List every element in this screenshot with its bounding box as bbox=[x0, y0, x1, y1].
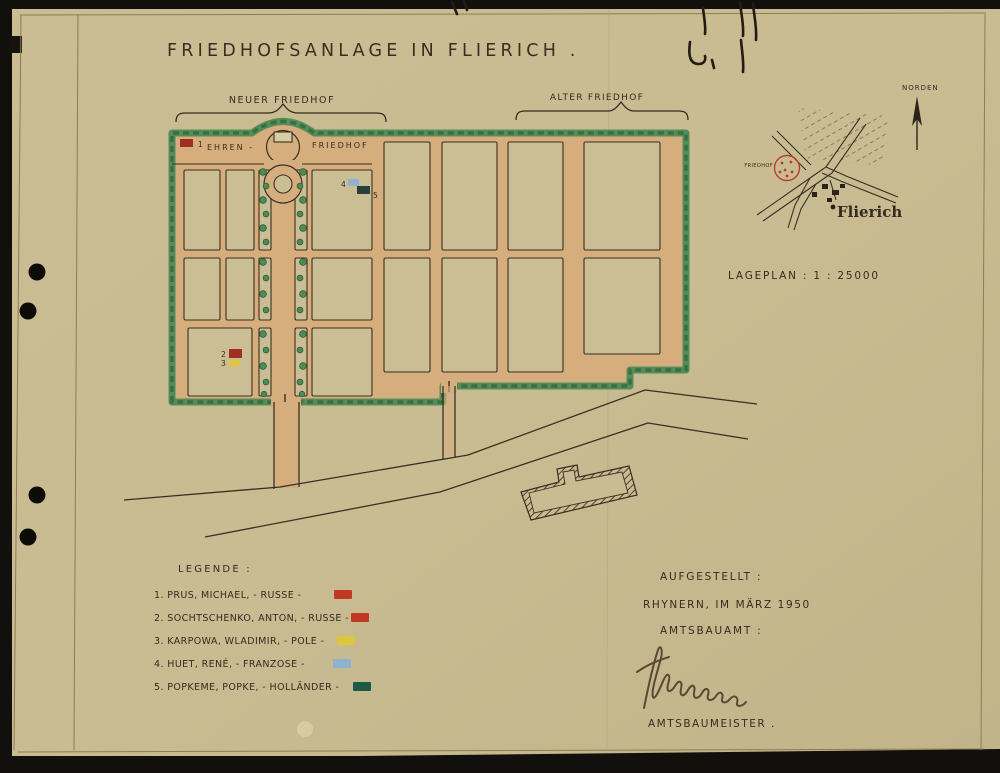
grave-marker-3 bbox=[229, 360, 240, 366]
grave-marker-4-number: 4 bbox=[341, 180, 346, 189]
tree-strip-block bbox=[259, 328, 271, 396]
aufgestellt-label: AUFGESTELLT : bbox=[660, 571, 762, 583]
legend-swatch bbox=[337, 636, 355, 645]
grave-block bbox=[184, 258, 220, 320]
cemetery-plan-drawing: FRIEDHOFSANLAGE IN FLIERICH . NEUER FRIE… bbox=[0, 0, 1000, 773]
place-date-label: RHYNERN, IM MÄRZ 1950 bbox=[643, 598, 811, 611]
legend-item: 5. POPKEME, POPKE, - HOLLÄNDER - bbox=[154, 682, 339, 693]
legend-heading: LEGENDE : bbox=[178, 564, 252, 575]
grave-marker-3-number: 3 bbox=[221, 359, 226, 368]
tree-strip-block bbox=[295, 328, 307, 396]
grave-block bbox=[508, 258, 563, 372]
amtsbauamt-label: AMTSBAUAMT : bbox=[660, 625, 763, 637]
field-hatching bbox=[798, 108, 890, 166]
ehren-label-left: EHREN - bbox=[207, 143, 254, 152]
cemetery-plan: EHREN - FRIEDHOF 1 4 5 2 3 bbox=[172, 122, 686, 410]
legend-swatch bbox=[333, 659, 351, 668]
scale-label: LAGEPLAN : 1 : 25000 bbox=[728, 270, 880, 282]
scanned-plan-sheet: FRIEDHOFSANLAGE IN FLIERICH . NEUER FRIE… bbox=[0, 0, 1000, 773]
town-name-label: Flierich bbox=[837, 203, 902, 221]
grave-block bbox=[184, 170, 220, 250]
grave-block bbox=[442, 142, 497, 250]
grave-block bbox=[508, 142, 563, 250]
scan-edge-top bbox=[0, 0, 1000, 9]
paper-blemish bbox=[297, 721, 313, 737]
legend-item: 2. SOCHTSCHENKO, ANTON, - RUSSE - bbox=[154, 613, 349, 624]
side-path bbox=[444, 386, 454, 456]
scan-edge-left bbox=[0, 0, 12, 773]
ehren-label-right: FRIEDHOF bbox=[312, 141, 369, 150]
chapel-building bbox=[274, 132, 292, 142]
legend-swatch bbox=[353, 682, 371, 691]
grave-block bbox=[226, 170, 254, 250]
legend-item: 1. PRUS, MICHAEL, - RUSSE - bbox=[154, 590, 301, 601]
circular-island bbox=[274, 175, 292, 193]
grave-block bbox=[384, 258, 430, 372]
amtsbaumeister-label: AMTSBAUMEISTER . bbox=[648, 718, 776, 730]
grave-block bbox=[188, 328, 252, 396]
grave-marker-5 bbox=[357, 186, 370, 194]
legend-swatch bbox=[351, 613, 369, 622]
grave-block bbox=[312, 328, 372, 396]
grave-block bbox=[584, 258, 660, 354]
scan-corner-mark bbox=[9, 36, 22, 53]
legend-item: 3. KARPOWA, WLADIMIR, - POLE - bbox=[154, 636, 324, 647]
north-label: NORDEN bbox=[902, 84, 939, 92]
grave-block bbox=[226, 258, 254, 320]
access-path bbox=[275, 402, 298, 488]
grave-marker-2 bbox=[229, 349, 242, 358]
grave-marker-1-number: 1 bbox=[198, 140, 203, 149]
grave-block bbox=[312, 258, 372, 320]
grave-block bbox=[584, 142, 660, 250]
grave-marker-5-number: 5 bbox=[373, 191, 378, 200]
grave-block bbox=[442, 258, 497, 372]
grave-block bbox=[384, 142, 430, 250]
grave-marker-1 bbox=[180, 139, 193, 147]
alter-friedhof-label: ALTER FRIEDHOF bbox=[550, 93, 644, 103]
legend-item: 4. HUET, RENÉ, - FRANZOSE - bbox=[154, 658, 305, 670]
legend-swatch bbox=[334, 590, 352, 599]
grave-marker-2-number: 2 bbox=[221, 350, 226, 359]
sheet-title: FRIEDHOFSANLAGE IN FLIERICH . bbox=[167, 41, 580, 61]
friedhof-stamp-label: FRIEDHOF bbox=[744, 163, 773, 169]
grave-marker-4 bbox=[348, 179, 359, 186]
